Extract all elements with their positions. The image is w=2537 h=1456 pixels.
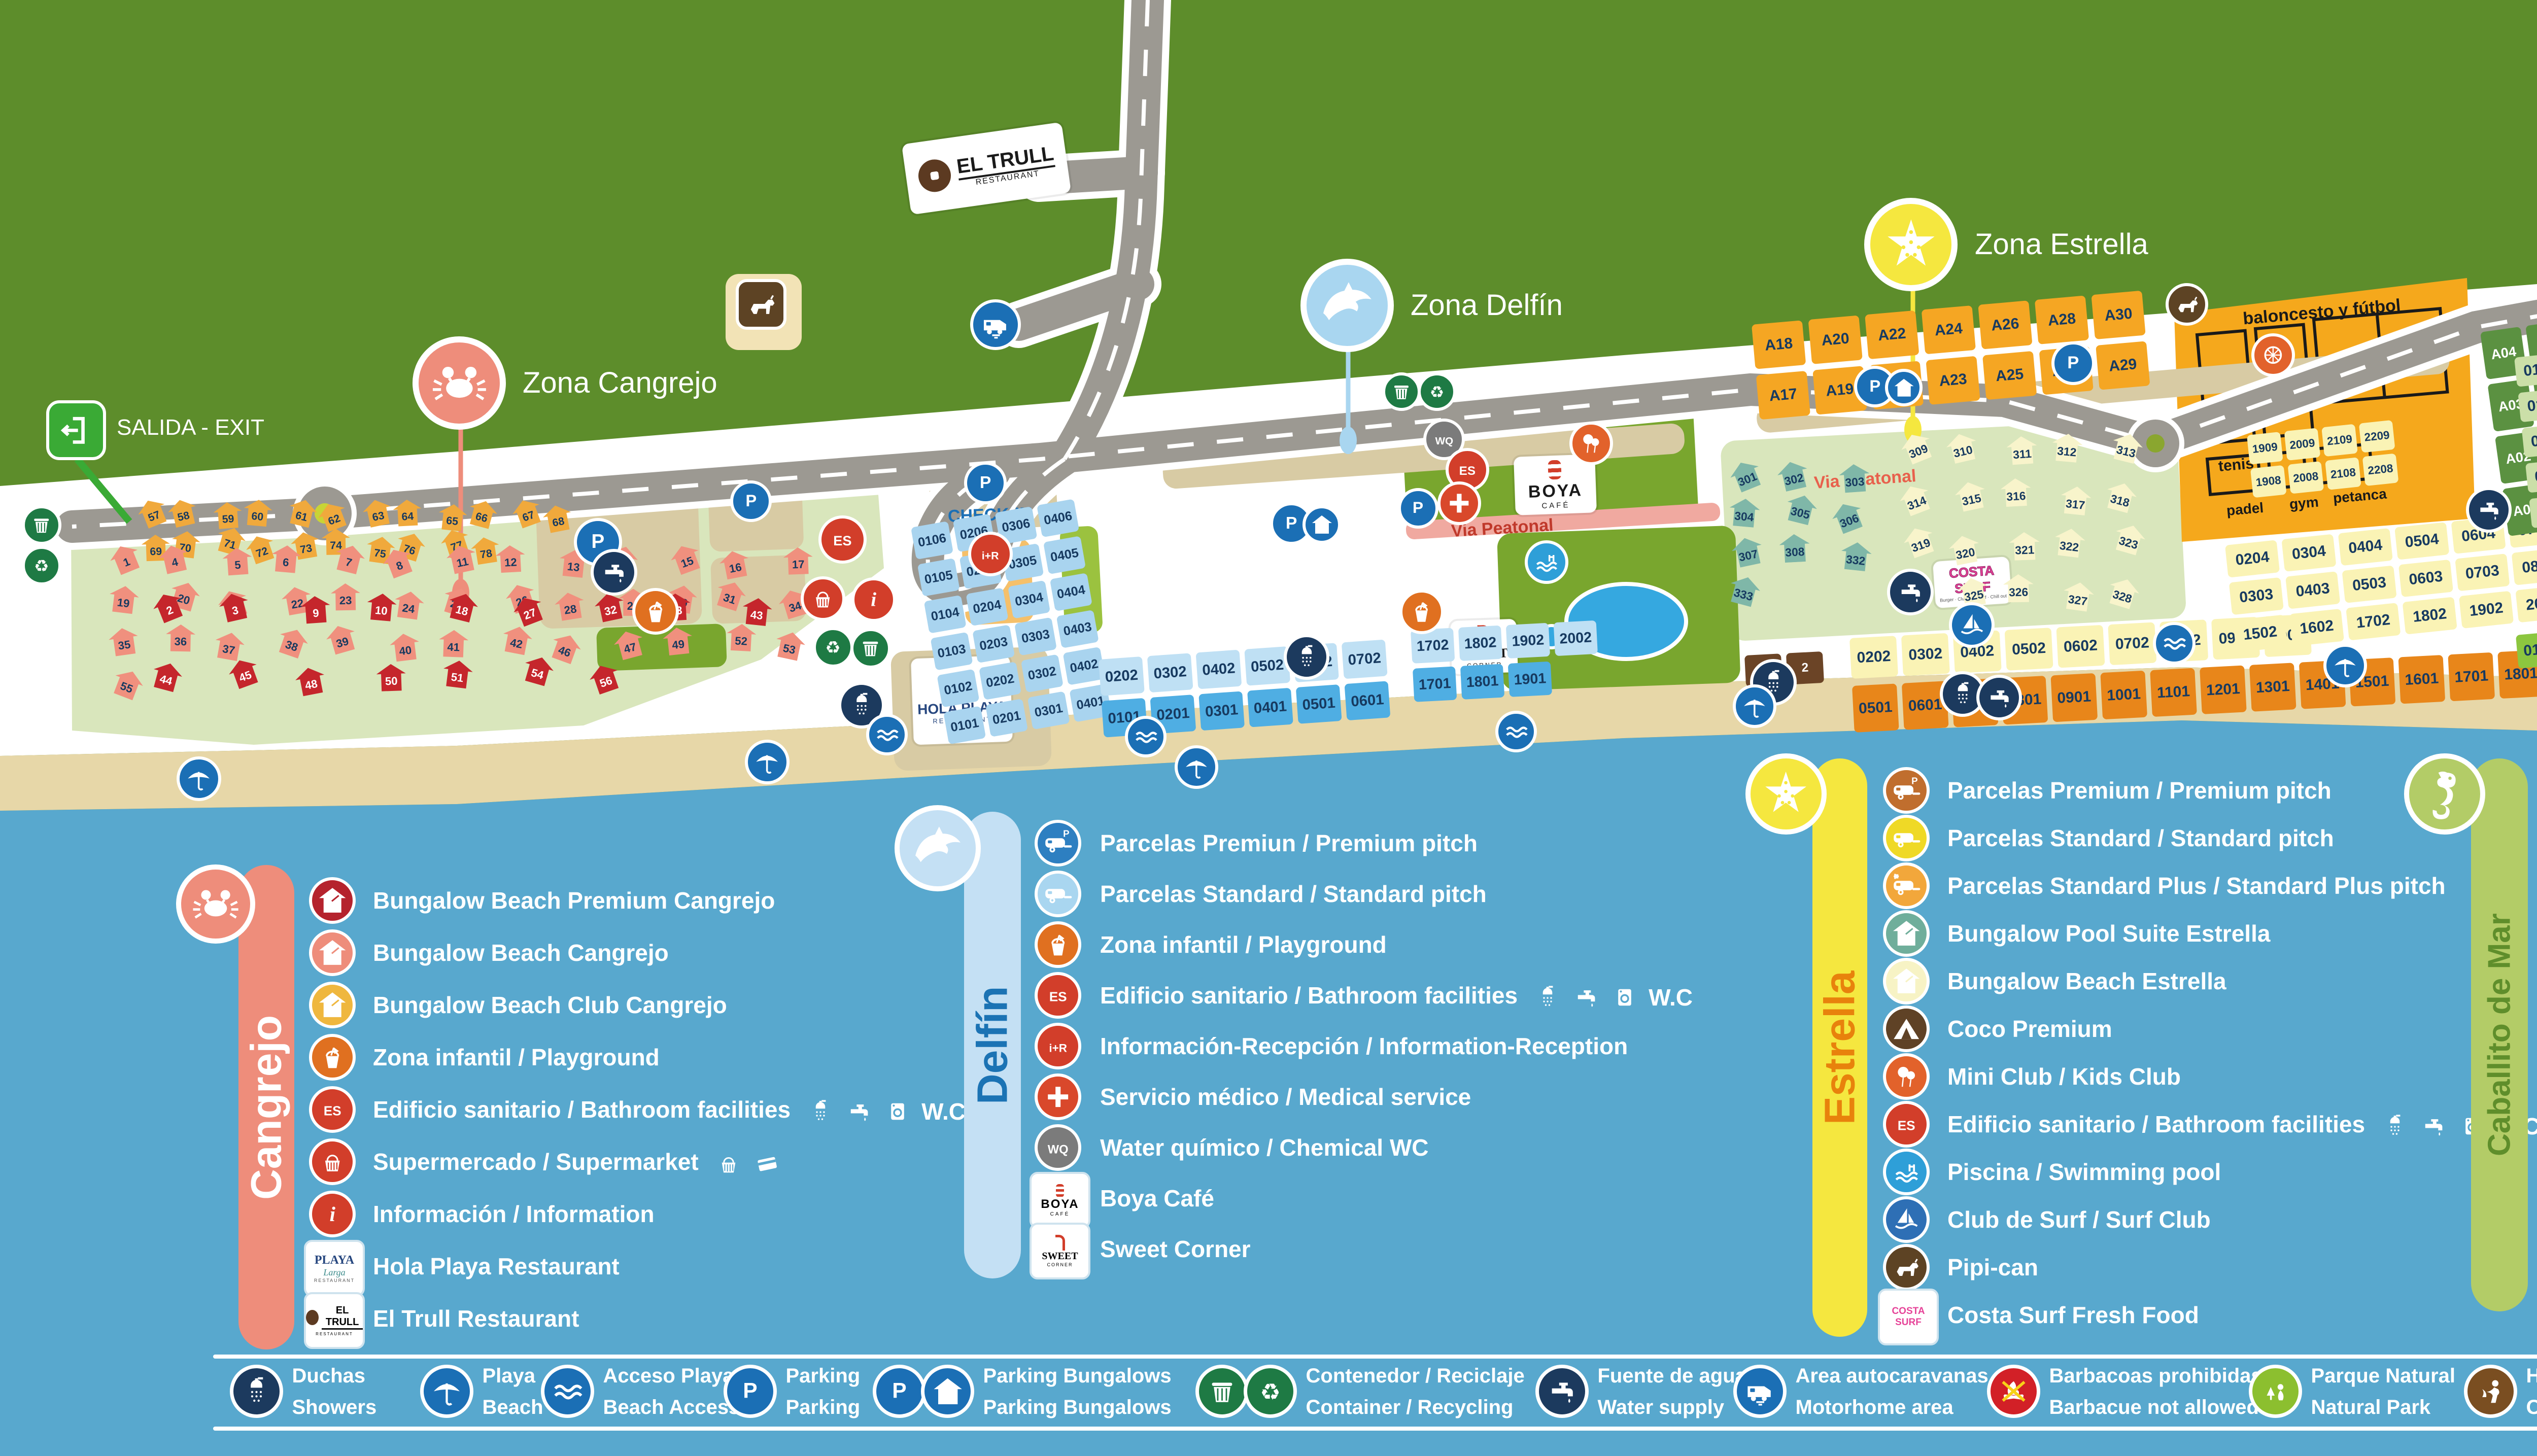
- bar-label: Beach: [483, 1396, 543, 1419]
- legend-icon-house: [1883, 910, 1930, 957]
- bar-container-icon: [1195, 1365, 1249, 1418]
- legend-icon-sail: [1883, 1196, 1930, 1243]
- legend-item-label: Bungalow Beach Club Cangrejo: [373, 992, 727, 1018]
- logo-boya-icon: BOYACAFÉ: [1030, 1172, 1090, 1229]
- bar-label: Orchard: [2526, 1396, 2537, 1419]
- bar-label: Playa: [483, 1365, 536, 1388]
- legend-item-label: Parcelas Standard / Standard pitch: [1100, 881, 1487, 907]
- legend-item-label: El Trull Restaurant: [373, 1306, 579, 1331]
- logo-sweet-icon: SWEETCORNER: [1030, 1223, 1090, 1279]
- svg-text:P: P: [1911, 776, 1917, 786]
- logo-playa-icon: PLAYALargaRESTAURANT: [304, 1240, 365, 1297]
- svg-text:P: P: [892, 1378, 906, 1403]
- legend-icon-balloons: [1883, 1053, 1930, 1100]
- bar-motorhome-icon: [1733, 1365, 1787, 1418]
- bar-label: Motorhome area: [1796, 1396, 1953, 1419]
- svg-text:ES: ES: [1049, 989, 1067, 1004]
- legend-icon-es: ES: [1883, 1101, 1930, 1148]
- legend-icon-ir: i+R: [1035, 1023, 1081, 1069]
- legend-item-label: Bungalow Beach Estrella: [1947, 968, 2226, 994]
- legend-zone-name: Caballito de Mar: [2471, 758, 2528, 1311]
- bar-tap-icon: [1535, 1365, 1589, 1418]
- bar-label: Contenedor / Reciclaje: [1306, 1365, 1525, 1388]
- legend-icon-wq: WQ: [1035, 1124, 1081, 1171]
- legend-item-label: Sweet Corner: [1100, 1236, 1251, 1262]
- legend-icon-house: [309, 982, 356, 1028]
- legend-icon-caravanp: P: [1035, 820, 1081, 866]
- legend-icon-tent: [1883, 1006, 1930, 1052]
- legend-icon-house: [1883, 958, 1930, 1004]
- legend-zone-band: Estrella: [1812, 758, 1867, 1337]
- bar-label: Beach Access: [603, 1396, 740, 1419]
- wc-extra-icons: W.C: [1533, 983, 1693, 1012]
- bar-label: Container / Recycling: [1306, 1396, 1514, 1419]
- legend-icon-med: [1035, 1073, 1081, 1120]
- bar-umbrella-icon: [420, 1365, 473, 1418]
- bar-label: Fuente de agua: [1598, 1365, 1746, 1388]
- svg-text:i+R: i+R: [1049, 1042, 1067, 1054]
- legend-item-label: Hola Playa Restaurant: [373, 1254, 620, 1279]
- legend-icon-caravanplus: [1883, 862, 1930, 909]
- legend-item-label: Club de Surf / Surf Club: [1947, 1207, 2211, 1232]
- logo-trull-icon: EL TRULLRESTAURANT: [304, 1292, 365, 1349]
- legend-item-label: Parcelas Standard / Standard pitch: [1947, 825, 2334, 851]
- bar-label: Barbacue not allowed: [2049, 1396, 2259, 1419]
- bar-park-icon: [2249, 1365, 2302, 1418]
- bar-waves-icon: [541, 1365, 594, 1418]
- starfish-icon: [1745, 753, 1827, 835]
- legend-icon-info: i: [309, 1191, 356, 1237]
- bar-label: Area autocaravanas: [1796, 1365, 1989, 1388]
- legend-item-label: Supermercado / Supermarket: [373, 1149, 782, 1178]
- legend-item-label: Zona infantil / Playground: [1100, 932, 1387, 957]
- bar-label: Parking Bungalows: [983, 1396, 1172, 1419]
- bar-p-icon: P: [873, 1365, 926, 1418]
- bar-label: Acceso Playa: [603, 1365, 734, 1388]
- bar-label: Parking Bungalows: [983, 1365, 1172, 1388]
- legend-item-label: Water químico / Chemical WC: [1100, 1135, 1429, 1160]
- legend-item-label: Bungalow Pool Suite Estrella: [1947, 921, 2270, 946]
- legend-item-label: Costa Surf Fresh Food: [1947, 1302, 2199, 1328]
- legend-item-label: Boya Café: [1100, 1186, 1214, 1211]
- legend-item-label: Edificio sanitario / Bathroom facilities…: [373, 1097, 966, 1126]
- legend-icon-es: ES: [1035, 972, 1081, 1019]
- crab-icon: [176, 864, 255, 944]
- legend-item-label: Parcelas Standard Plus / Standard Plus p…: [1947, 873, 2446, 898]
- legend-item-label: Parcelas Premiun / Premium pitch: [1100, 830, 1478, 856]
- legend-item-label: Bungalow Beach Premium Cangrejo: [373, 888, 775, 913]
- seahorse-icon: [2404, 753, 2485, 835]
- bar-label: Parking: [786, 1396, 861, 1419]
- legend-item-label: Edificio sanitario / Bathroom facilities…: [1947, 1112, 2537, 1141]
- legend-zone-band: Delfín: [964, 812, 1021, 1278]
- legend-zone-name: Delfín: [964, 812, 1021, 1278]
- bar-label: Showers: [292, 1396, 377, 1419]
- legend-icon-caravan: [1883, 815, 1930, 861]
- legend-icon-caravan: [1035, 871, 1081, 917]
- wc-extra-icons: W.C: [806, 1097, 966, 1126]
- legend-item-label: Mini Club / Kids Club: [1947, 1064, 2181, 1089]
- legend-zone-band: Caballito de Mar: [2471, 758, 2528, 1311]
- svg-text:WQ: WQ: [1048, 1143, 1069, 1156]
- legend-item-label: Servicio médico / Medical service: [1100, 1084, 1471, 1110]
- legend-layer: CangrejoBungalow Beach Premium CangrejoB…: [0, 0, 2537, 1456]
- svg-text:P: P: [743, 1378, 757, 1403]
- logo-costa-icon: COSTA SURF: [1878, 1289, 1939, 1345]
- legend-item-label: Zona infantil / Playground: [373, 1045, 660, 1070]
- svg-text:♻: ♻: [1260, 1378, 1281, 1405]
- legend-icon-es: ES: [309, 1086, 356, 1133]
- bar-bbqno-icon: [1987, 1365, 2040, 1418]
- legend-item-label: Coco Premium: [1947, 1016, 2112, 1042]
- svg-text:P: P: [1063, 828, 1069, 839]
- campsite-map: Zona CangrejoZona DelfínZona EstrellaZon…: [0, 0, 2537, 1456]
- legend-icon-bucket: [309, 1034, 356, 1081]
- svg-text:i: i: [329, 1202, 335, 1226]
- legend-zone-name: Cangrejo: [238, 865, 294, 1349]
- dolphin-icon: [895, 805, 981, 891]
- legend-item-label: Piscina / Swimming pool: [1947, 1159, 2221, 1185]
- legend-item-label: Parcelas Premium / Premium pitch: [1947, 778, 2332, 803]
- legend-item-label: Bungalow Beach Cangrejo: [373, 940, 669, 965]
- legend-item-label: Edificio sanitario / Bathroom facilities…: [1100, 983, 1693, 1012]
- legend-icon-pool: [1883, 1149, 1930, 1195]
- legend-item-label: Información / Information: [373, 1201, 655, 1227]
- bar-p-icon: P: [724, 1365, 777, 1418]
- bar-label: Parque Natural: [2311, 1365, 2456, 1388]
- bar-label: Natural Park: [2311, 1396, 2431, 1419]
- bar-orchard-icon: [2464, 1365, 2517, 1418]
- bar-phouse-icon: [921, 1365, 974, 1418]
- bar-label: Duchas: [292, 1365, 366, 1388]
- bar-label: Huerto: [2526, 1365, 2537, 1388]
- legend-icon-house: [309, 929, 356, 976]
- bar-recycle-icon: ♻: [1244, 1365, 1297, 1418]
- legend-icon-bucket: [1035, 921, 1081, 968]
- bar-rule-bottom: [213, 1427, 2537, 1431]
- bar-label: Barbacoas prohibidas: [2049, 1365, 2262, 1388]
- bar-rule-top: [213, 1355, 2537, 1359]
- svg-text:ES: ES: [324, 1103, 341, 1118]
- legend-item-label: Pipi-can: [1947, 1255, 2038, 1280]
- legend-item-label: Información-Recepción / Information-Rece…: [1100, 1033, 1628, 1059]
- legend-icon-caravanp: P: [1883, 767, 1930, 814]
- shop-extra-icons: [714, 1149, 782, 1178]
- bar-label: Parking: [786, 1365, 861, 1388]
- legend-icon-basket: [309, 1138, 356, 1185]
- bar-shower-icon: [230, 1365, 283, 1418]
- legend-zone-band: Cangrejo: [238, 865, 294, 1349]
- legend-zone-name: Estrella: [1812, 758, 1867, 1337]
- bar-label: Water supply: [1598, 1396, 1725, 1419]
- svg-text:ES: ES: [1898, 1118, 1915, 1133]
- legend-icon-dog: [1883, 1244, 1930, 1291]
- legend-icon-house: [309, 877, 356, 924]
